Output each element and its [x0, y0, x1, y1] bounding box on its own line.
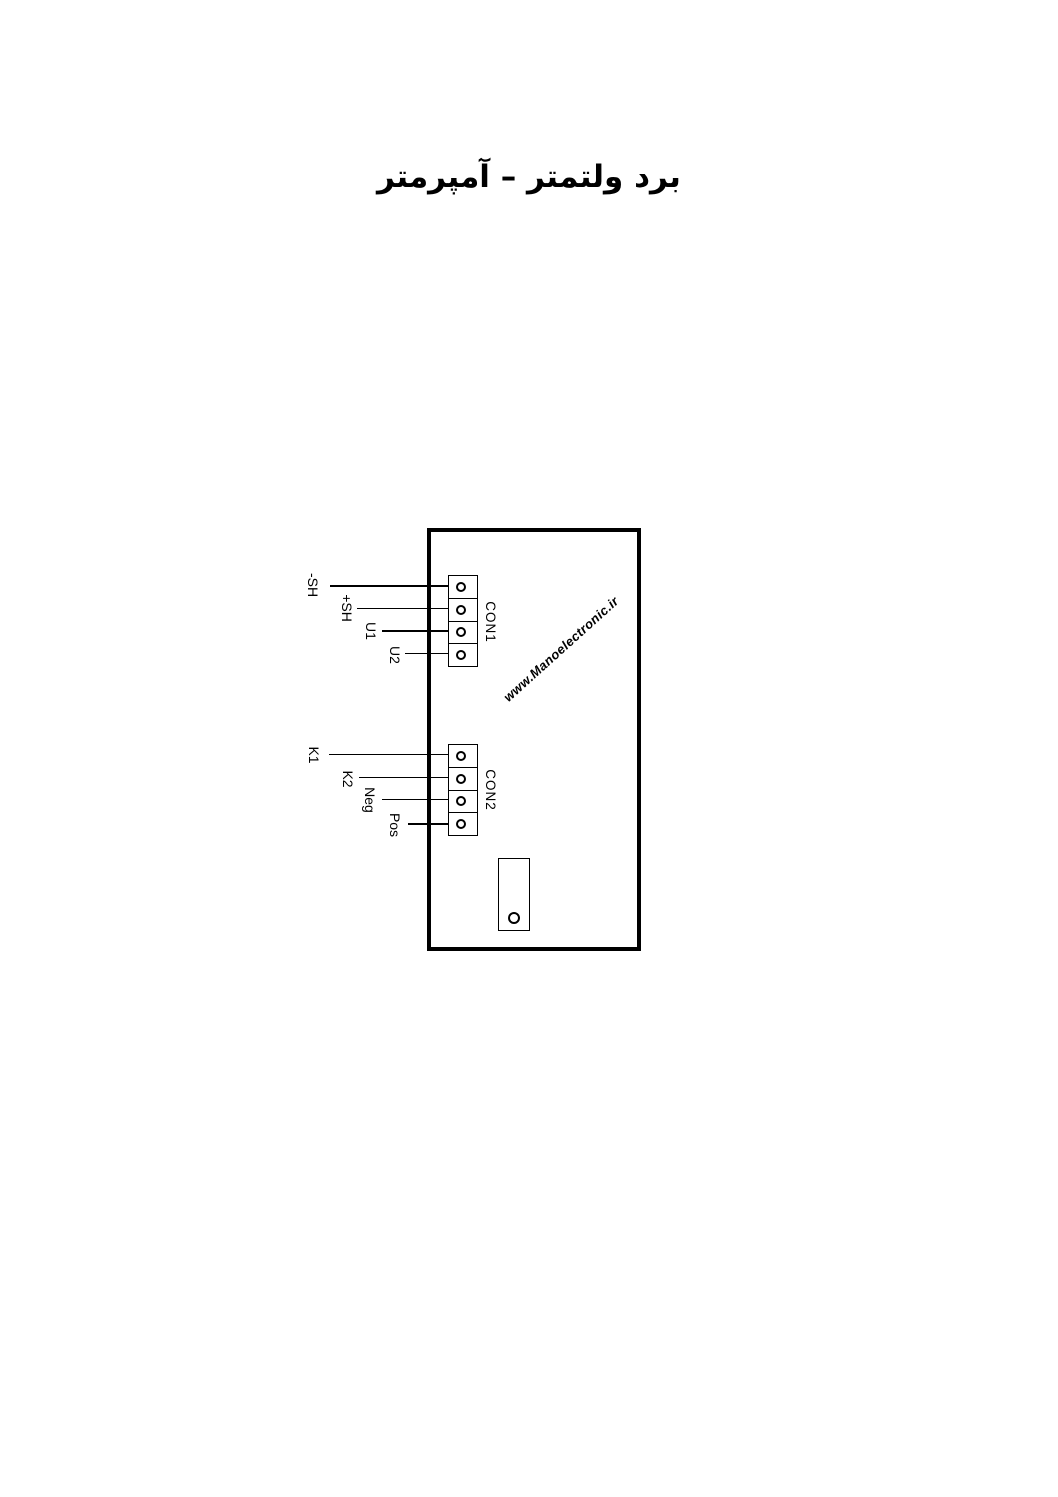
pin-label-u2: U2: [388, 646, 402, 664]
terminal-hole-icon: [456, 774, 466, 784]
pin-label-sh-minus: -SH: [306, 573, 320, 597]
page-title: برد ولتمتر – آمپرمتر: [0, 158, 1058, 197]
terminal-cell: [449, 790, 477, 813]
terminal-hole-icon: [456, 796, 466, 806]
document-page: برد ولتمتر – آمپرمتر www.Manoelectronic.…: [0, 0, 1058, 1497]
terminal-hole-icon: [456, 650, 466, 660]
mounting-hole-icon: [508, 912, 520, 924]
pin-label-sh-plus: +SH: [340, 594, 354, 622]
pin-line-sh-minus: [330, 585, 456, 587]
terminal-cell: [449, 767, 477, 790]
terminal-hole-icon: [456, 627, 466, 637]
terminal-cell: [449, 621, 477, 644]
terminal-hole-icon: [456, 751, 466, 761]
connector-con2: [448, 744, 478, 836]
pin-line-u1: [382, 630, 456, 632]
pin-label-pos: Pos: [388, 813, 402, 837]
connector-label-con2: CON2: [483, 769, 497, 811]
connector-label-con1: CON1: [483, 601, 497, 643]
pin-line-neg: [382, 799, 456, 801]
terminal-cell: [449, 598, 477, 621]
terminal-cell: [449, 643, 477, 666]
terminal-hole-icon: [456, 605, 466, 615]
pin-label-k1: K1: [307, 746, 321, 763]
terminal-hole-icon: [456, 819, 466, 829]
pin-label-u1: U1: [364, 622, 378, 640]
terminal-cell: [449, 812, 477, 835]
pin-line-sh-plus: [357, 608, 456, 610]
terminal-hole-icon: [456, 582, 466, 592]
component-rect: [498, 858, 530, 931]
connector-con1: [448, 575, 478, 667]
terminal-cell: [449, 745, 477, 767]
terminal-cell: [449, 576, 477, 598]
pin-line-k2: [359, 777, 456, 779]
pin-line-k1: [329, 754, 456, 756]
pin-label-neg: Neg: [363, 787, 377, 813]
pin-label-k2: K2: [341, 770, 355, 787]
